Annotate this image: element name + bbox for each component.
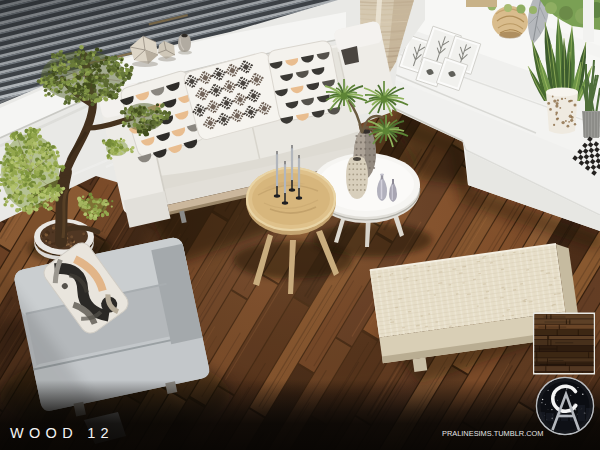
svg-text:WOOD 12: WOOD 12 [10,425,114,441]
svg-text:PRALINESIMS.TUMBLR.COM: PRALINESIMS.TUMBLR.COM [442,429,543,438]
